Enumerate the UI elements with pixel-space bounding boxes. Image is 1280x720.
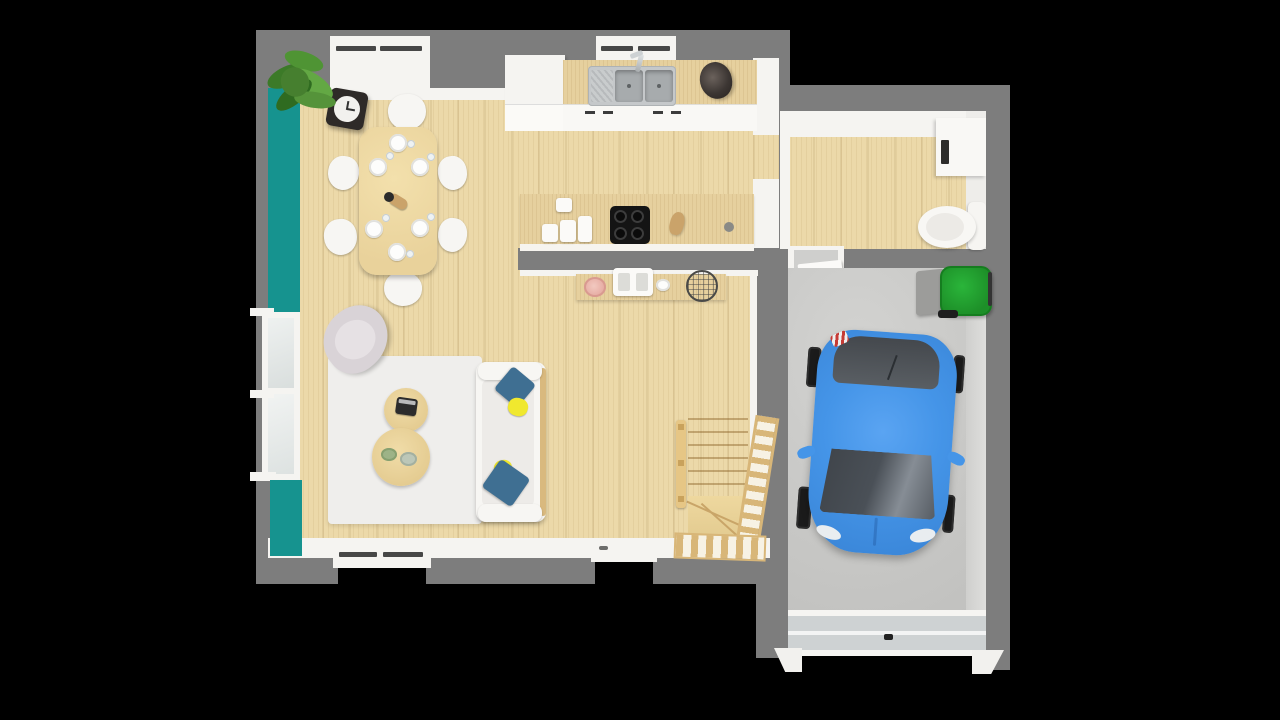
place-setting-glass [407, 140, 415, 148]
garage-door [788, 614, 986, 654]
table-bowl [400, 452, 417, 466]
window-bottom-shadow [338, 568, 426, 602]
kitchen-island-edge [520, 244, 754, 251]
garage-door-sill [774, 648, 802, 672]
place-setting-plate [389, 134, 407, 152]
fruit-bowl [584, 277, 606, 297]
bin-handle [988, 272, 992, 306]
place-setting-glass [427, 213, 435, 221]
place-setting-glass [406, 250, 414, 258]
espresso-machine-detail [618, 273, 630, 291]
car [790, 322, 974, 565]
garage-door-handle [884, 634, 893, 640]
window-glass-bar [339, 552, 377, 557]
wall-garage-right [986, 85, 1010, 670]
place-setting-glass [386, 152, 394, 160]
place-setting-plate [411, 219, 429, 237]
wall-interior-kitchen-living [518, 248, 1010, 270]
window-glass-bar [380, 46, 422, 51]
island-canister [542, 224, 558, 242]
sink-drain [657, 84, 661, 88]
table-bowl [381, 448, 397, 461]
espresso-machine-detail [636, 273, 648, 291]
railing-post [678, 460, 684, 466]
toilet-bowl [918, 206, 976, 248]
front-door-shadow [595, 562, 653, 602]
island-canister [560, 220, 576, 242]
window-glass-bar [601, 46, 633, 51]
front-door-handle [599, 546, 608, 550]
island-canister [556, 198, 572, 212]
window-glass-bar [336, 46, 376, 51]
car-windshield [819, 448, 939, 520]
camera-object [395, 397, 418, 417]
island-canister [578, 216, 592, 242]
stairs-bottom-railing [674, 532, 767, 561]
cooktop [610, 206, 650, 244]
window-left-sill [250, 308, 274, 316]
sink-drainboard [591, 70, 613, 102]
tall-cabinet-front [505, 104, 565, 131]
kitchen-east-wall-face [753, 185, 779, 248]
garage-door-frame [788, 610, 986, 616]
window-bottom [333, 544, 431, 568]
bin-lid [940, 266, 992, 316]
place-setting-plate [388, 243, 406, 261]
camera-detail [398, 399, 415, 405]
sofa-wood-trim [540, 368, 546, 516]
bin-wheels [938, 310, 958, 318]
appliance-slot [941, 140, 949, 164]
cabinet-handle [603, 111, 613, 114]
potted-plant [260, 46, 340, 124]
utility-west-face [780, 111, 790, 249]
railing-post [678, 496, 684, 502]
window-glass-bar [383, 552, 423, 557]
kitchen-counter-front [563, 104, 757, 131]
wire-basket [686, 270, 718, 302]
sofa-armrest [478, 504, 542, 522]
stairs-upper-flight [688, 418, 748, 496]
teal-accent-wall-lower [270, 480, 302, 556]
espresso-machine [613, 268, 653, 296]
place-setting-plate [369, 158, 387, 176]
cabinet-handle [653, 111, 663, 114]
tall-cabinet [505, 55, 565, 107]
garage-door-frame [788, 650, 986, 656]
toilet-seat [926, 213, 964, 241]
sideboard-plate [656, 279, 670, 291]
kitchen-sink [588, 66, 676, 106]
pepper-mill-cap [384, 192, 394, 202]
place-setting-plate [365, 220, 383, 238]
floorplan-render [0, 0, 1280, 720]
opening-kitchen-utility [753, 133, 779, 183]
cooktop-burner [614, 210, 627, 223]
car-rear-window [832, 334, 941, 389]
front-door [591, 538, 657, 562]
sink-drain [627, 84, 631, 88]
stairs-left-railing [676, 420, 686, 508]
garage-east-face [966, 268, 986, 618]
place-setting-glass [382, 214, 390, 222]
island-small-item [724, 222, 734, 232]
cooktop-burner [631, 227, 644, 240]
window-glass-bar [638, 46, 670, 51]
cooktop-burner [614, 227, 627, 240]
window-left-sill [250, 390, 274, 398]
wall-garage-top [788, 85, 1010, 113]
place-setting-plate [411, 158, 429, 176]
window-left-glass-lower [268, 394, 294, 474]
window-left-glass-upper [268, 318, 294, 388]
cooktop-burner [631, 210, 644, 223]
cabinet-handle [671, 111, 681, 114]
railing-post [678, 424, 684, 430]
utility-cabinet [936, 118, 986, 176]
cabinet-handle [585, 111, 595, 114]
place-setting-glass [427, 153, 435, 161]
armchair-cushion [327, 312, 383, 368]
